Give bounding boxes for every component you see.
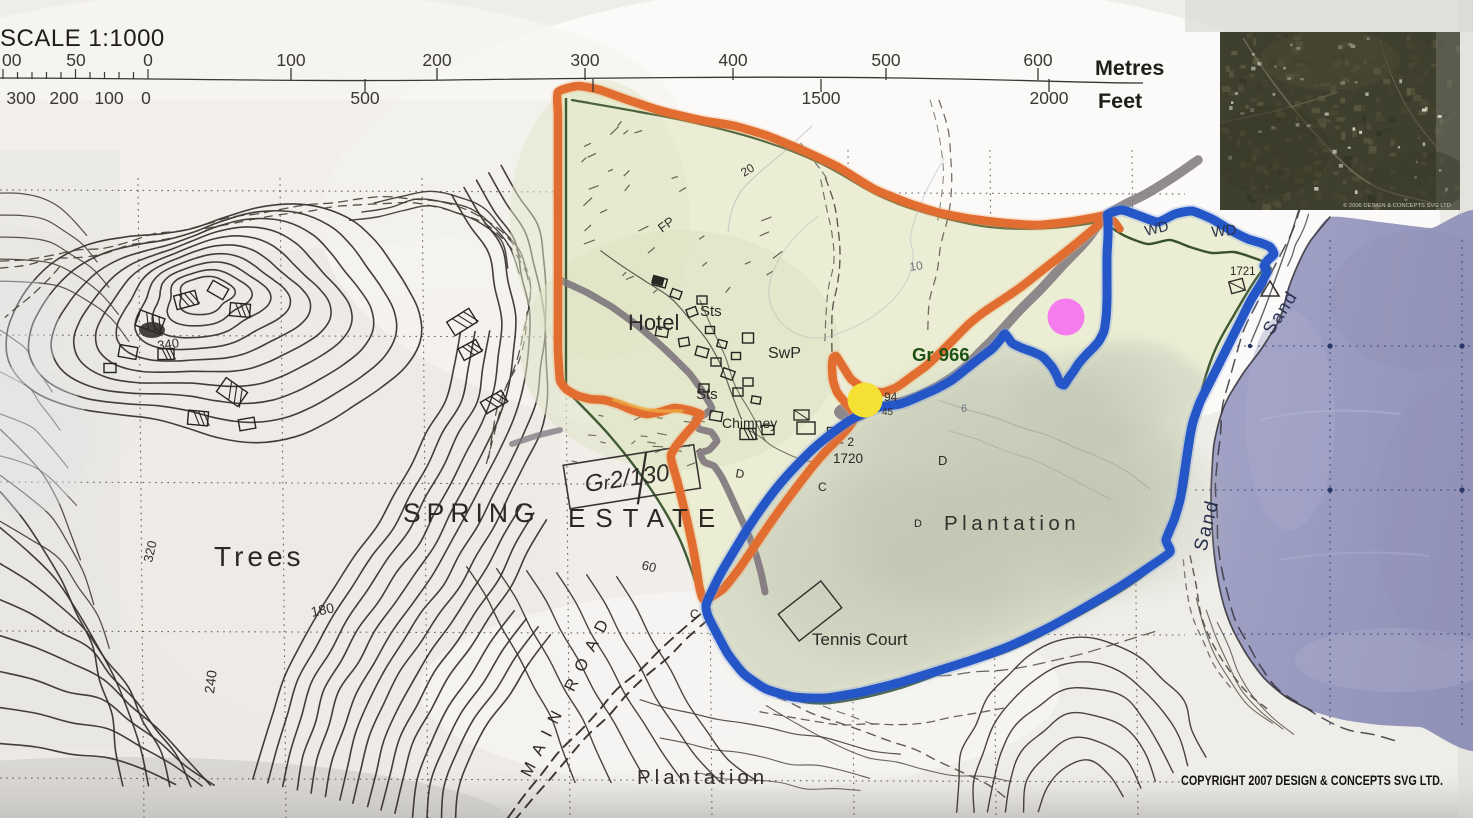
svg-text:Metres: Metres: [1095, 56, 1164, 80]
svg-text:Tennis Court: Tennis Court: [812, 630, 908, 649]
svg-text:Trees: Trees: [214, 541, 305, 572]
svg-text:Hotel: Hotel: [628, 310, 679, 335]
svg-text:D: D: [914, 518, 922, 530]
svg-text:94: 94: [884, 390, 898, 404]
svg-text:Sts: Sts: [700, 303, 722, 320]
svg-text:Gr 966: Gr 966: [912, 344, 970, 365]
svg-text:200: 200: [49, 88, 78, 108]
svg-text:1500: 1500: [802, 88, 841, 108]
svg-text:100: 100: [276, 50, 305, 70]
svg-text:Chimney: Chimney: [722, 415, 777, 431]
svg-text:10: 10: [908, 258, 923, 274]
svg-text:300: 300: [6, 88, 35, 108]
svg-text:0: 0: [143, 50, 153, 70]
svg-text:SPRING: SPRING: [403, 498, 541, 528]
svg-text:- 2: - 2: [840, 435, 854, 449]
svg-text:1721: 1721: [1230, 266, 1256, 278]
svg-text:100: 100: [94, 88, 123, 108]
svg-text:WD: WD: [1211, 221, 1238, 241]
svg-text:ESTATE: ESTATE: [568, 503, 725, 533]
svg-text:45: 45: [882, 407, 894, 418]
svg-text:Plantation: Plantation: [944, 512, 1080, 535]
svg-text:Feet: Feet: [1098, 89, 1142, 113]
svg-text:240: 240: [201, 669, 220, 694]
svg-text:00: 00: [2, 50, 22, 70]
svg-text:500: 500: [871, 50, 900, 70]
svg-text:Plantation: Plantation: [637, 766, 768, 789]
svg-text:200: 200: [422, 50, 451, 70]
svg-text:600: 600: [1023, 50, 1052, 70]
svg-text:Sts: Sts: [696, 386, 718, 403]
svg-text:SCALE 1:1000: SCALE 1:1000: [0, 25, 165, 52]
svg-text:50: 50: [66, 50, 86, 70]
svg-text:C: C: [818, 480, 827, 494]
svg-text:340: 340: [156, 335, 180, 353]
svg-text:0: 0: [141, 88, 151, 108]
svg-text:D: D: [938, 453, 947, 468]
svg-text:SwP: SwP: [768, 345, 801, 362]
svg-text:6: 6: [961, 403, 967, 415]
svg-text:300: 300: [570, 50, 599, 70]
svg-text:1720: 1720: [833, 451, 863, 466]
svg-text:2000: 2000: [1030, 88, 1069, 108]
svg-text:© 2006 DESIGN & CONCEPTS SVG L: © 2006 DESIGN & CONCEPTS SVG LTD: [1343, 202, 1451, 209]
svg-text:COPYRIGHT 2007 DESIGN & CONCEP: COPYRIGHT 2007 DESIGN & CONCEPTS SVG LTD…: [1181, 772, 1443, 788]
svg-text:500: 500: [350, 88, 379, 108]
svg-text:400: 400: [718, 50, 747, 70]
svg-text:C: C: [690, 607, 699, 621]
